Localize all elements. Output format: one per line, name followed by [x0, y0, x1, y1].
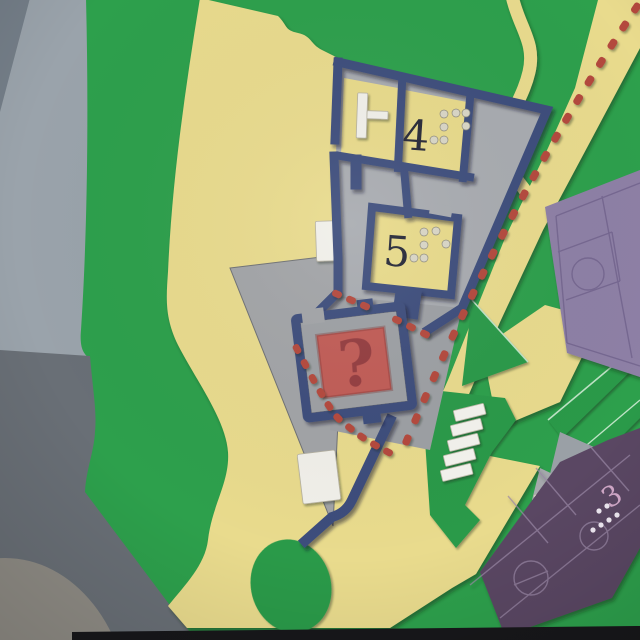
tactile-map-photo: 3 — [0, 0, 640, 640]
photo-vignette — [0, 0, 640, 640]
